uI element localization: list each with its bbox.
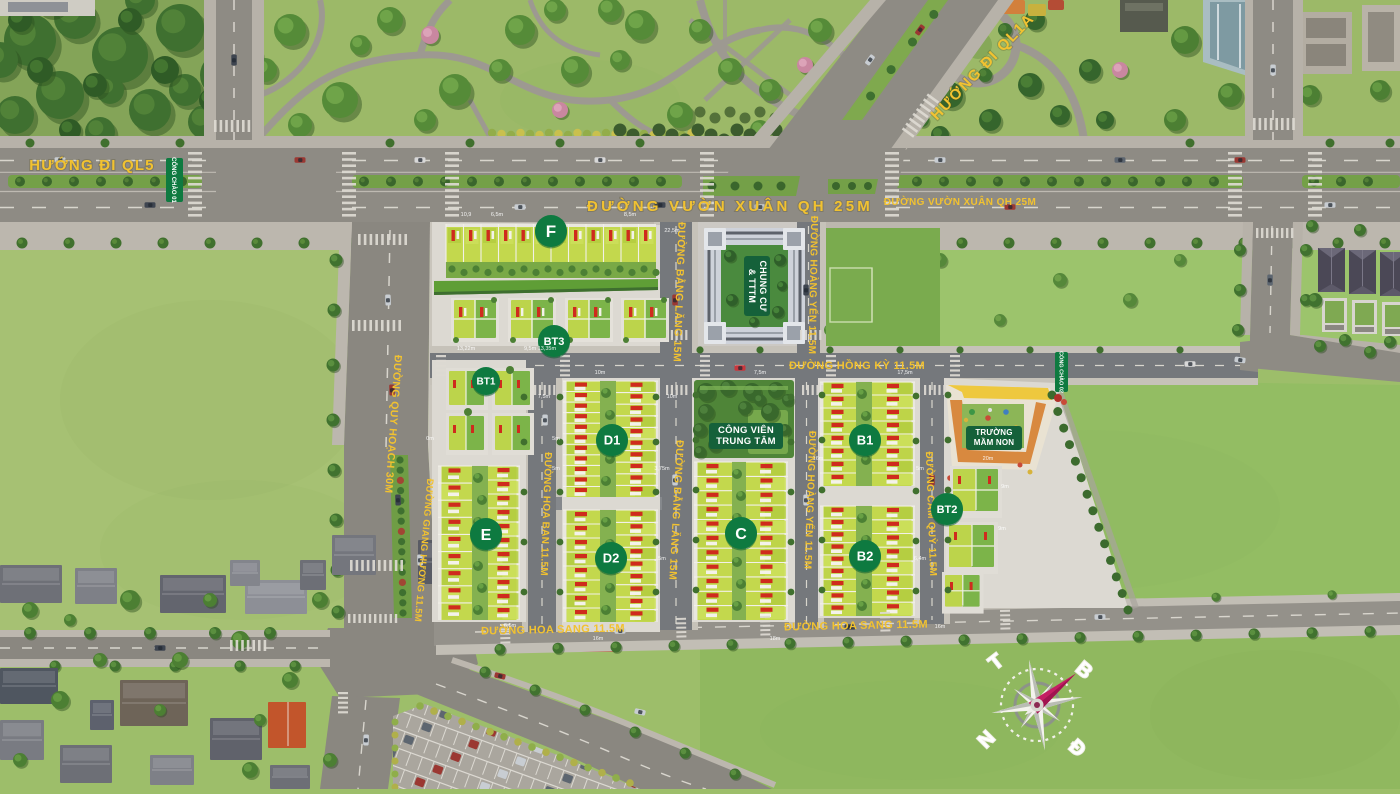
svg-text:0m: 0m bbox=[426, 436, 434, 442]
svg-text:5m: 5m bbox=[552, 436, 560, 442]
svg-text:13,22m: 13,22m bbox=[457, 346, 476, 352]
svg-text:CỔNG CHÀO 01: CỔNG CHÀO 01 bbox=[170, 157, 177, 203]
svg-text:10,9: 10,9 bbox=[461, 212, 472, 218]
svg-text:16m: 16m bbox=[935, 624, 946, 630]
svg-text:TRUNG TÂM: TRUNG TÂM bbox=[716, 435, 776, 447]
svg-text:CÔNG VIÊN: CÔNG VIÊN bbox=[718, 424, 774, 436]
svg-text:BT1: BT1 bbox=[477, 377, 496, 388]
svg-text:ĐƯỜNG VƯỜN XUÂN QH 25M: ĐƯỜNG VƯỜN XUÂN QH 25M bbox=[884, 195, 1036, 208]
svg-text:8,5m: 8,5m bbox=[624, 212, 637, 218]
svg-text:7,5m: 7,5m bbox=[754, 370, 767, 376]
svg-text:HƯỚNG ĐI QL5: HƯỚNG ĐI QL5 bbox=[29, 156, 154, 174]
svg-text:10m: 10m bbox=[667, 394, 678, 400]
svg-text:6,4m: 6,4m bbox=[914, 556, 927, 562]
svg-text:& TTTM: & TTTM bbox=[747, 269, 757, 303]
svg-text:17,5m: 17,5m bbox=[897, 370, 913, 376]
svg-text:B1: B1 bbox=[857, 433, 874, 448]
svg-text:20m: 20m bbox=[983, 456, 994, 462]
svg-text:5m: 5m bbox=[552, 466, 560, 472]
svg-text:5m: 5m bbox=[658, 556, 666, 562]
svg-text:CHUNG CƯ: CHUNG CƯ bbox=[758, 260, 768, 311]
svg-text:7,5m: 7,5m bbox=[538, 394, 551, 400]
svg-text:9m: 9m bbox=[1001, 484, 1009, 490]
svg-text:10m: 10m bbox=[595, 370, 606, 376]
svg-text:3,75m: 3,75m bbox=[654, 466, 670, 472]
svg-text:C: C bbox=[735, 526, 747, 543]
svg-text:6,5m: 6,5m bbox=[504, 623, 517, 629]
svg-text:E: E bbox=[481, 527, 492, 544]
svg-text:16m: 16m bbox=[593, 636, 604, 642]
svg-text:16m: 16m bbox=[813, 456, 824, 462]
svg-text:TRƯỜNG: TRƯỜNG bbox=[975, 428, 1012, 437]
svg-text:D2: D2 bbox=[603, 551, 620, 566]
svg-text:BT2: BT2 bbox=[937, 504, 958, 516]
svg-text:18m: 18m bbox=[770, 636, 781, 642]
svg-text:CỔNG CHÀO 02: CỔNG CHÀO 02 bbox=[1058, 351, 1065, 393]
svg-text:D1: D1 bbox=[604, 433, 621, 448]
svg-text:F: F bbox=[546, 222, 556, 241]
svg-text:9m: 9m bbox=[998, 526, 1006, 532]
svg-text:6,5m: 6,5m bbox=[491, 212, 504, 218]
svg-text:22,5m: 22,5m bbox=[664, 228, 680, 234]
svg-text:MẦM NON: MẦM NON bbox=[974, 437, 1015, 447]
svg-text:5m: 5m bbox=[916, 466, 924, 472]
svg-text:B2: B2 bbox=[857, 549, 874, 564]
svg-text:9,5m 13,35m: 9,5m 13,35m bbox=[524, 346, 557, 352]
